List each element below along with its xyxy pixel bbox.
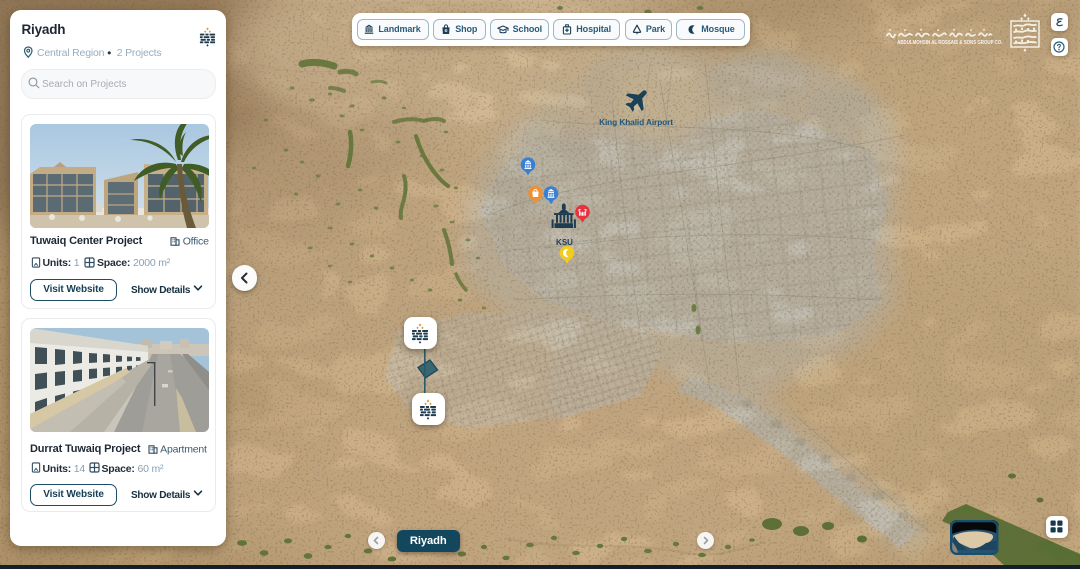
svg-text:King Khalid Airport: King Khalid Airport xyxy=(599,117,673,127)
svg-text:KSU: KSU xyxy=(556,238,573,247)
